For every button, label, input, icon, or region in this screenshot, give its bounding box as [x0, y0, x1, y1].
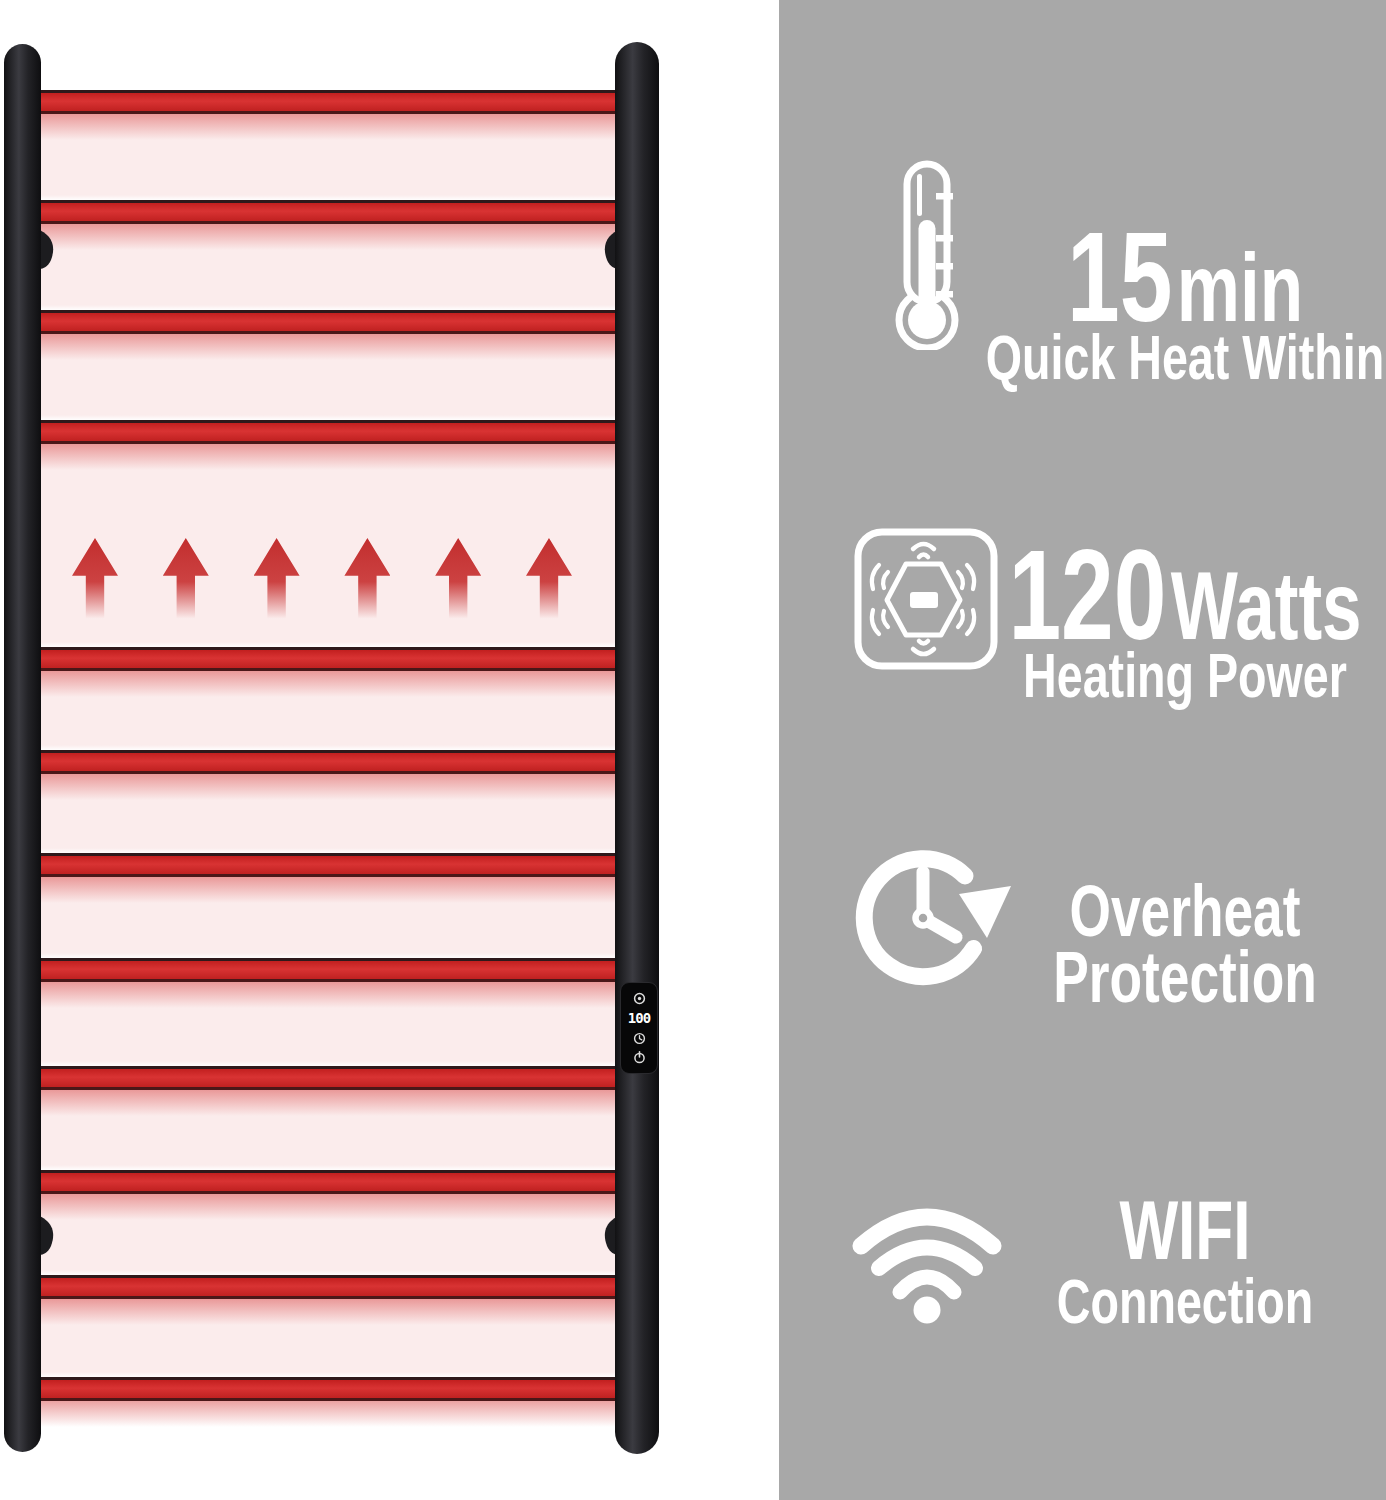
heat-arrow-icon — [526, 538, 572, 622]
power-icon — [633, 1051, 646, 1064]
feature-caption: Heating Power — [978, 641, 1386, 709]
heat-arrow-icon — [163, 538, 209, 622]
heating-rung — [24, 200, 638, 224]
feature-caption: Quick Heat Within — [978, 323, 1386, 391]
heating-rung — [24, 1377, 638, 1401]
temperature-display: 100 — [628, 1011, 650, 1025]
feature-line1: Overheat — [978, 878, 1386, 944]
features-panel: 15 min Quick Heat Within 120 — [779, 0, 1386, 1500]
heat-arrow-icon — [254, 538, 300, 622]
heating-rung — [24, 1066, 638, 1090]
heating-rung — [24, 647, 638, 671]
left-rail-post — [4, 44, 41, 1452]
right-rail-post — [615, 42, 659, 1454]
heat-arrow-icon — [72, 538, 118, 622]
thermostat-dial-icon — [633, 992, 646, 1005]
control-panel: 100 — [620, 982, 658, 1074]
towel-warmer-illustration: 100 — [0, 0, 779, 1500]
rising-heat-arrows — [72, 538, 572, 622]
feature-line2: Protection — [978, 944, 1386, 1010]
thermometer-icon — [892, 160, 962, 350]
heating-rung — [24, 420, 638, 444]
heating-rung — [24, 90, 638, 114]
feature-wifi-connection: WIFI Connection — [978, 1188, 1386, 1333]
heating-rung — [24, 853, 638, 877]
heating-rung — [24, 750, 638, 774]
feature-quick-heat: 15 min Quick Heat Within — [978, 213, 1386, 391]
heating-rung — [24, 310, 638, 334]
feature-line2: Connection — [978, 1270, 1386, 1333]
feature-overheat-protection: Overheat Protection — [978, 878, 1386, 1010]
feature-heating-power: 120 Watts Heating Power — [978, 531, 1386, 709]
heat-arrow-icon — [435, 538, 481, 622]
timer-clock-icon — [633, 1032, 646, 1045]
feature-line1: WIFI — [978, 1188, 1386, 1272]
heating-rung — [24, 1170, 638, 1194]
heating-rung — [24, 1275, 638, 1299]
heating-rung — [24, 958, 638, 982]
product-infographic: 100 15 min Quic — [0, 0, 1386, 1500]
heat-arrow-icon — [344, 538, 390, 622]
